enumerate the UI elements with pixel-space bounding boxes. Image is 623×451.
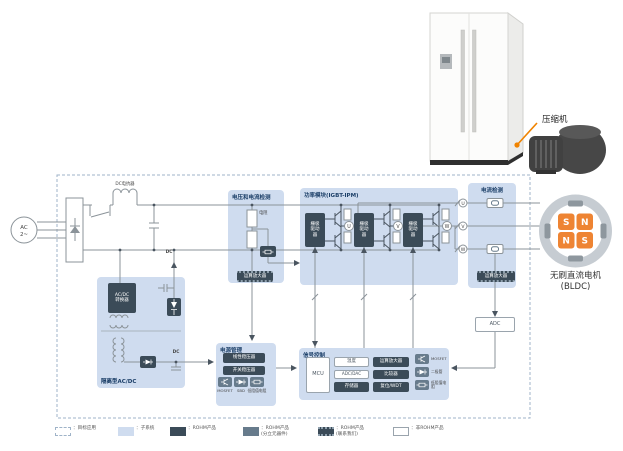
legend-subsystem: ：子系统 [118,426,154,436]
linear-regulator-button: 线性稳压器 [223,353,265,363]
acdc-converter-block: AC/DC转换器 [108,283,136,313]
sc-resistor-icon [415,380,429,390]
legend-swatch-subsystem [118,427,134,436]
ac-source: AC 2~ [11,217,37,243]
legend-swatch-dashed [55,427,71,436]
legend-swatch-discrete [243,427,259,436]
arrows [171,247,498,371]
legend-target-application: ：目标应用 [55,426,96,436]
sc-opamp-button: 运算放大器 [373,357,409,367]
low-ohm-resistor-label: 低阻值电阻 [243,389,271,393]
dc-label-out: DC [168,351,184,356]
legend-rohm-discrete: ：ROHM产品(分立元器件) [243,426,289,437]
svg-text:AC: AC [20,225,28,231]
sc-mosfet-icon [415,354,429,364]
memory-button: 存储器 [334,382,369,392]
compressor-image [529,125,606,174]
gate-driver-1: 栅极驱动器 [305,213,325,247]
diode-block [167,298,181,316]
svg-text:S: S [582,237,588,247]
amp-block [260,246,276,257]
junction-dots [119,204,441,364]
refrigerator-image [430,13,523,165]
legend-swatch-rohm [170,427,186,436]
resistor-icon [250,377,264,387]
gate-driver-2: 栅极驱动器 [354,213,374,247]
svg-text:S: S [563,218,569,228]
igbt-bridges [325,205,449,250]
sbd-icon [234,377,248,387]
compressor-label: 压缩机 [542,113,568,125]
diagram-canvas: 隔离型AC/DC 电压和电流检测 功率模块(IGBT-IPM) 电流检测 电源管… [0,0,623,451]
legend-swatch-nonrohm [393,427,409,436]
sc-mosfet-label: MOSFET [431,357,448,361]
bldc-motor: S N N S [539,195,612,268]
adc-box: ADC [475,317,515,332]
dc-reactor-label: DC电抗器 [107,183,143,188]
reset-wdt-button: 复位/WDT [373,382,409,392]
phase-inputs: U V W [459,199,467,253]
switching-regulator-button: 开关稳压器 [223,366,265,376]
svg-text:W: W [461,247,466,253]
adc-dac-box: ADC/DAC [334,370,369,380]
cd-opamp-button: 运算放大器 [477,271,515,282]
dc-label-top: DC [162,251,176,256]
rectifier-symbol [66,198,83,262]
svg-text:U: U [461,201,464,207]
sc-diode-icon [415,367,429,377]
sc-diode-label: 二极管 [431,370,448,374]
svg-text:U: U [347,224,351,230]
legend-rohm-product: ：ROHM产品 [170,426,216,436]
resistor-label: 电阻 [259,212,279,217]
motor-label: 无刷直流电机 (BLDC) [539,271,612,293]
mosfet-icon [218,377,232,387]
sc-resistor-label: 低阻值电阻 [431,381,447,390]
legend-rohm-contact: ：ROHM产品(联系我们) [318,426,364,437]
legend-non-rohm: ：非ROHM产品 [393,426,444,436]
legend-swatch-contact [318,427,334,436]
svg-text:N: N [581,218,589,228]
comparator-button: 比较器 [373,370,409,380]
gate-driver-3: 栅极驱动器 [403,213,423,247]
regulator-block [140,356,156,368]
svg-text:2~: 2~ [20,232,28,238]
svg-text:N: N [562,237,570,247]
vi-opamp-button: 运算放大器 [237,271,273,282]
mcu-box: MCU [306,357,330,393]
temp-box: 温度 [334,357,369,367]
svg-text:W: W [445,224,450,230]
